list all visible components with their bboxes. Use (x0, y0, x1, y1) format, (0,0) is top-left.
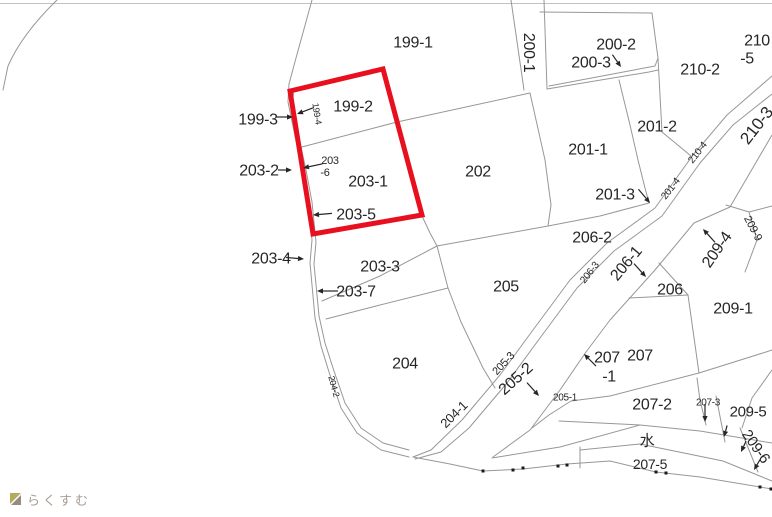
arrow-head (317, 288, 323, 293)
arrow-tail (527, 383, 535, 392)
parcel-label-200-1: 200-1 (520, 33, 537, 73)
parcel-label-207: 207 (627, 348, 653, 365)
arrow-tail (319, 213, 332, 214)
watermark-brand-text: らくすむ (27, 490, 91, 509)
parcel-label-209-5: 209-5 (730, 403, 767, 420)
arrow-head (298, 256, 304, 261)
parcel-label-206-2: 206-2 (572, 230, 612, 247)
parcel-label-207-2: 207-2 (632, 397, 672, 414)
parcel-label--1: -1 (602, 369, 616, 386)
parcel-label-203-2: 203-2 (239, 163, 279, 180)
parcel-label-201-2: 201-2 (637, 119, 677, 136)
survey-point-dot (482, 470, 485, 473)
parcel-label-199-2: 199-2 (333, 99, 373, 116)
parcel-label-209-1: 209-1 (713, 301, 753, 318)
parcel-label-203: 203 (321, 155, 339, 167)
parcel-label-207: 207 (594, 350, 620, 367)
parcel-label-199-4: 199-4 (310, 102, 323, 125)
rakusumu-logo-icon (9, 493, 22, 506)
parcel-label--5: -5 (740, 51, 754, 68)
arrow-tail (726, 425, 728, 431)
survey-point-dot (566, 464, 569, 467)
parcel-label-206-3: 206-3 (578, 260, 602, 286)
arrow-tail (638, 189, 646, 198)
parcel-label--6: -6 (320, 167, 329, 179)
parcel-label-207-3: 207-3 (696, 398, 721, 409)
parcel-label-199-3: 199-3 (238, 112, 278, 129)
parcel-label-205: 205 (493, 279, 519, 296)
parcel-label-203-1: 203-1 (348, 174, 388, 191)
parcel-label-201-4: 201-4 (659, 176, 683, 202)
parcel-label-199-1: 199-1 (393, 35, 433, 52)
parcel-label-206-1: 206-1 (607, 243, 646, 284)
rakusumu-watermark: らくすむ (9, 490, 91, 509)
arrow-head (286, 167, 292, 172)
parcel-label-209-9: 209-9 (741, 214, 764, 243)
parcel-label-206: 206 (657, 282, 683, 299)
parcel-label-200-2: 200-2 (596, 37, 636, 54)
survey-point-dot (557, 465, 560, 468)
parcel-label-202: 202 (465, 164, 491, 181)
parcel-label-201-1: 201-1 (568, 142, 608, 159)
parcel-label-205-1: 205-1 (553, 393, 578, 404)
parcel-label-210-4: 210-4 (686, 140, 710, 166)
parcel-label-204-1: 204-1 (437, 398, 470, 431)
parcel-label-水: 水 (640, 432, 655, 449)
parcel-map[interactable]: 199-1200-1200-2200-3210-5210-2199-3199-2… (0, 0, 772, 517)
parcel-label-210: 210 (744, 33, 770, 50)
arrow-head (297, 109, 304, 114)
parcel-label-210-2: 210-2 (680, 62, 720, 79)
arrow-head (615, 61, 621, 67)
survey-point-dots (482, 464, 772, 491)
parcel-label-203-7: 203-7 (336, 284, 376, 301)
leader-arrows (277, 55, 760, 470)
parcel-label-200-3: 200-3 (571, 55, 611, 72)
arrow-tail (612, 55, 617, 62)
parcel-label-210-3: 210-3 (736, 103, 772, 148)
arrow-head (702, 416, 707, 422)
parcel-label-204-2: 204-2 (326, 375, 341, 399)
survey-point-dot (522, 467, 525, 470)
map-viewport[interactable]: 199-1200-1200-2200-3210-5210-2199-3199-2… (0, 0, 772, 517)
survey-point-dot (512, 469, 515, 472)
survey-point-dot (665, 472, 668, 475)
survey-point-dot (759, 486, 762, 489)
parcel-label-203-3: 203-3 (360, 259, 400, 276)
parcel-label-203-5: 203-5 (336, 207, 376, 224)
parcel-label-201-3: 201-3 (595, 187, 635, 204)
parcel-label-207-5: 207-5 (633, 456, 668, 472)
parcel-label-209-4: 209-4 (699, 229, 736, 271)
parcel-label-203-4: 203-4 (251, 251, 291, 268)
parcel-label-204: 204 (392, 356, 418, 373)
